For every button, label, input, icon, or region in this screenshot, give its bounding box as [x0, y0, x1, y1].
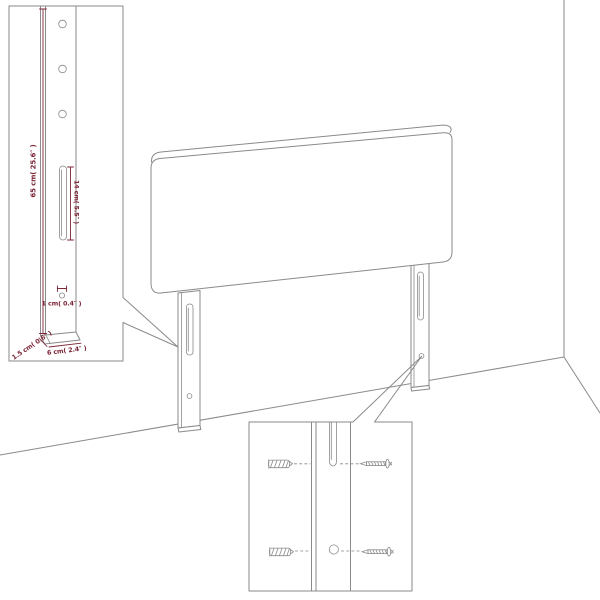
- slot-dimension-label: 14 cm( 5.5″ ): [73, 180, 81, 224]
- headboard-left-leg: [178, 291, 201, 433]
- leg-detail-slot: [60, 166, 67, 240]
- left-leg-slot: [187, 304, 194, 355]
- headboard-right-leg: [411, 263, 430, 392]
- diagram-canvas: 65 cm( 25.6″ ) 14 cm( 5.5″ ) 1 cm( 0.4″ …: [0, 0, 600, 600]
- headboard: [151, 125, 452, 432]
- headboard-product-diagram: 65 cm( 25.6″ ) 14 cm( 5.5″ ) 1 cm( 0.4″ …: [0, 0, 600, 600]
- leg-detail-hole-1: [59, 20, 67, 28]
- left-leg-hole: [187, 394, 192, 399]
- headboard-panel: [151, 133, 452, 293]
- leg-callout-leader-top: [123, 298, 178, 348]
- leg-callout-leader-bottom: [123, 323, 178, 348]
- right-leg-slot: [418, 272, 424, 320]
- hardware-callout-fill: [249, 422, 412, 591]
- floor-edge-right: [564, 357, 600, 413]
- leg-detail-hole-3: [59, 110, 67, 118]
- wall-anchor-2: [270, 548, 294, 557]
- leg-dimension-callout: 65 cm( 25.6″ ) 14 cm( 5.5″ ) 1 cm( 0.4″ …: [9, 6, 123, 362]
- mounting-hardware-callout: [249, 422, 412, 591]
- leg-detail-screw-hole: [59, 293, 64, 298]
- strip-hole: [329, 545, 338, 554]
- wall-anchor-1: [269, 460, 293, 469]
- height-dimension-label: 65 cm( 25.6″ ): [30, 144, 38, 197]
- leg-detail-hole-2: [59, 65, 67, 73]
- hole-dimension-label: 1 cm( 0.4″ ): [42, 300, 82, 308]
- leg-callout-leaders: [123, 298, 178, 348]
